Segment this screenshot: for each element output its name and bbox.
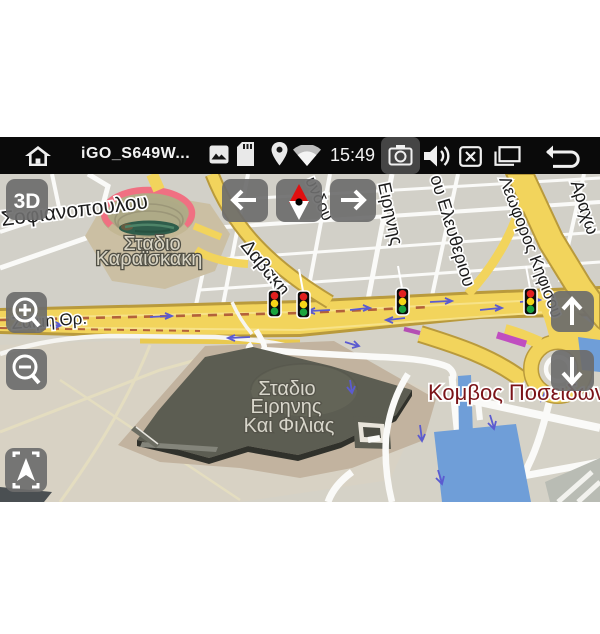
svg-text:Και Φιλιας: Και Φιλιας: [244, 415, 335, 437]
svg-text:Καραϊσκακη: Καραϊσκακη: [96, 248, 203, 270]
svg-text:3D: 3D: [14, 190, 41, 213]
